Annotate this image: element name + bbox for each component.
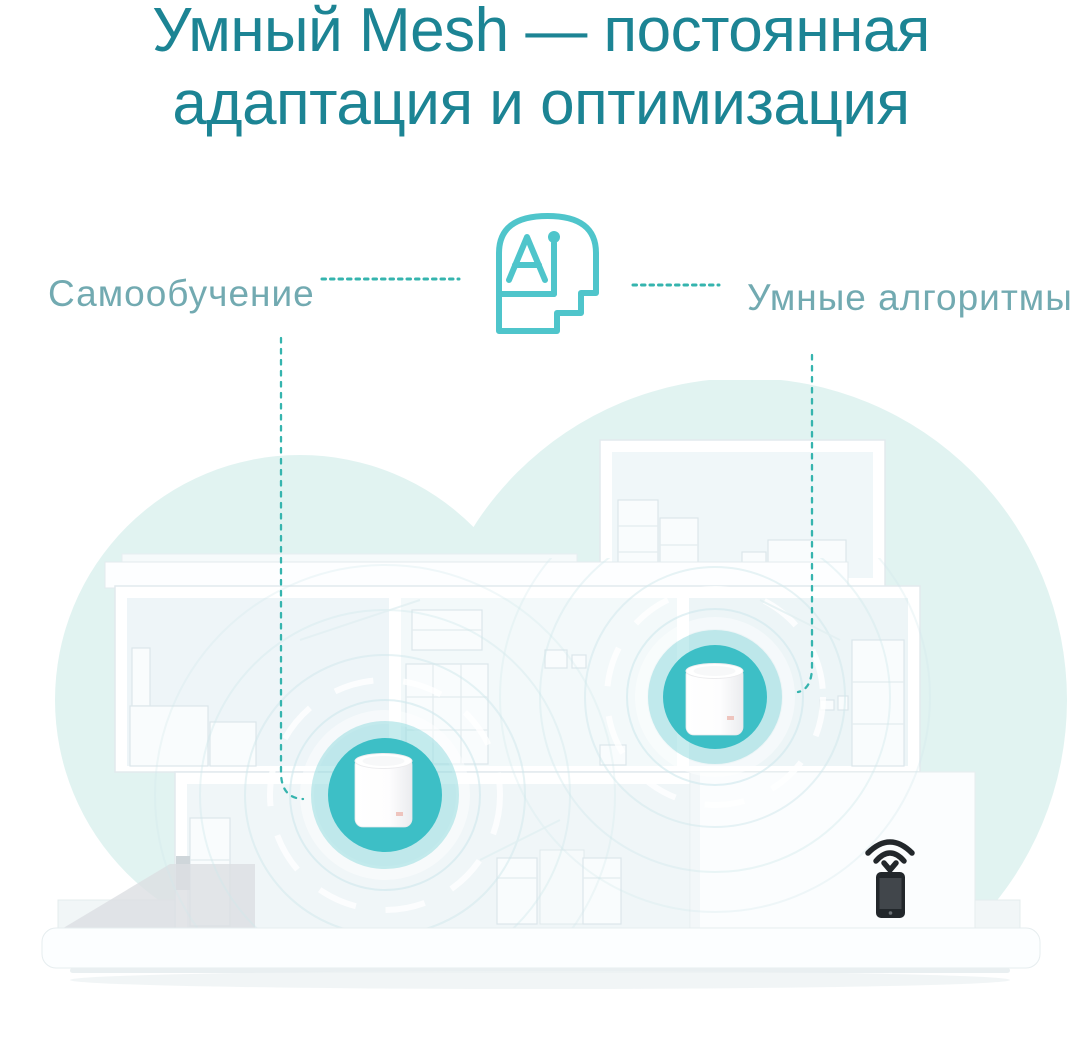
smartphone-icon bbox=[876, 872, 905, 918]
carpet bbox=[60, 864, 255, 930]
house-illustration bbox=[0, 380, 1082, 1048]
marketing-banner: Умный Mesh — постоянная адаптация и опти… bbox=[0, 0, 1082, 1048]
ai-head-icon bbox=[496, 213, 600, 337]
left-callout-label: Самообучение bbox=[48, 274, 315, 314]
base-platform bbox=[42, 928, 1040, 989]
ai-dot bbox=[548, 231, 560, 243]
mesh-router-2 bbox=[648, 630, 782, 764]
mesh-router-1 bbox=[311, 721, 459, 869]
ai-head-outline bbox=[499, 216, 596, 331]
page-title: Умный Mesh — постоянная адаптация и опти… bbox=[0, 0, 1082, 140]
front-wall-right bbox=[690, 772, 975, 934]
page-title-line1: Умный Mesh — постоянная bbox=[0, 0, 1082, 67]
right-callout-label: Умные алгоритмы bbox=[747, 278, 1073, 318]
page-title-line2: адаптация и оптимизация bbox=[0, 67, 1082, 140]
